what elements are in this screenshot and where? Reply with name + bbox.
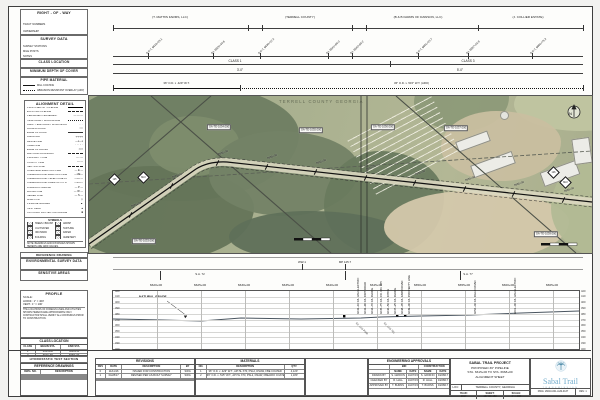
table-cell: REVISED PER AS-BUILT SURVEY bbox=[122, 374, 181, 378]
legend-item: CATHODIC PROTECTION ANODE■ bbox=[27, 211, 83, 215]
symbol-label: BUILDING bbox=[35, 236, 47, 239]
tick bbox=[583, 25, 584, 31]
station-tick bbox=[129, 212, 132, 218]
station-label: 6625+00 bbox=[172, 173, 183, 179]
legend-symbol: —FO— bbox=[67, 182, 83, 185]
table-cell: 36" O.D. x .515" W.T., API 5L X70, PSL2,… bbox=[207, 374, 285, 378]
legend-label: SECTION LINE bbox=[27, 166, 45, 169]
elevation-label-right: 340 bbox=[581, 336, 585, 339]
milepost-diamond: MLV bbox=[137, 171, 150, 184]
legend-label: PIPELINE MARKER bbox=[27, 203, 50, 206]
tick bbox=[478, 25, 479, 31]
sabal-palm-icon bbox=[555, 360, 567, 372]
crossing-annotation: 6647+25 C/L FENCE bbox=[393, 288, 397, 314]
panel-title: HYDROSTATIC TEST SECTION bbox=[21, 358, 87, 362]
symbols-list: TREES / BRUSHMARSHCULTIVATEDPASTUREORCHA… bbox=[27, 222, 83, 240]
approvals-cell: 10/27/15 bbox=[407, 384, 419, 388]
elevation-label-right: 380 bbox=[581, 313, 585, 316]
environmental-strip: WW-1MP 125.7 bbox=[0, 258, 600, 270]
tract-label: GA-TE-1037.000 bbox=[444, 125, 468, 131]
legend-symbol: —UT— bbox=[67, 178, 83, 181]
tick bbox=[248, 25, 249, 31]
header-cell: DESCRIPTION bbox=[207, 365, 285, 369]
title-block-main: SABAL TRAIL PROJECT PROPOSED 36" PIPELIN… bbox=[451, 359, 529, 385]
header-cell: DWG. NO. bbox=[21, 370, 41, 374]
header-cell: QTY. bbox=[285, 365, 304, 369]
owner-label: (T. MATHIS FARMS, LLC) bbox=[152, 15, 188, 19]
legend-symbol bbox=[67, 120, 83, 123]
milepost-label: MLV bbox=[560, 181, 571, 184]
dwg-cell: DWG: 26010-001-ALM-0137 bbox=[531, 389, 576, 396]
elevation-label-right: 400 bbox=[581, 301, 585, 304]
legend-symbol bbox=[67, 132, 83, 135]
legend-label: ADDL. TEMPORARY WORKSPACE bbox=[27, 124, 67, 127]
legend-label: ACCESS ROAD bbox=[27, 128, 46, 131]
header-cell: REV bbox=[96, 365, 106, 369]
header-cell: END STA. bbox=[61, 345, 87, 349]
sensitive-area-item: S.A. 77 bbox=[463, 272, 472, 276]
approvals-cell: R. HALL bbox=[419, 379, 437, 383]
profile-station-label: 6620+00 bbox=[150, 283, 162, 287]
profile-station-row: 6620+006625+006630+006635+006640+006645+… bbox=[0, 281, 600, 290]
alignment-sheet: RIGHT - OF - WAY TRACT NUMBERS OWNERSHIP… bbox=[0, 0, 600, 400]
legend-symbol: — P — bbox=[67, 187, 83, 190]
scale-cell: SCALE:1" = 400' bbox=[504, 391, 529, 399]
header-cell: BY bbox=[181, 365, 194, 369]
tract-label: GA-TE-1034.000 bbox=[207, 124, 231, 130]
tick bbox=[390, 61, 391, 67]
subcol-cell bbox=[369, 370, 390, 374]
station-label: 6655+00 bbox=[465, 176, 476, 182]
sensitive-areas-strip: S.A. 72S.A. 77 bbox=[0, 270, 600, 281]
table-cell: 0 bbox=[96, 370, 106, 374]
header-cell: BEGIN STA. bbox=[36, 345, 62, 349]
rev-value: 1 bbox=[585, 390, 586, 393]
crossing-annotation: 6645+75 C/L CO. RD. 155 bbox=[379, 281, 383, 314]
tract-label: GA-TE-1039.000 bbox=[534, 231, 558, 237]
class-label: CLASS 1 bbox=[228, 59, 241, 63]
aerial-map: N TERRELL COUNTY GEORGIA GA-TE-1033.000G… bbox=[88, 95, 593, 254]
legend-symbol: —··— bbox=[67, 157, 83, 160]
panel-profile: PROFILE SCALE: HORIZ.: 1" = 400' VERT.: … bbox=[20, 290, 88, 338]
foreign-line-annotation: EX. U/G PWR bbox=[355, 322, 369, 336]
reference-drawing-row bbox=[21, 379, 87, 380]
profile-scale-vertical: VERT.: 1" = 100' bbox=[23, 303, 85, 306]
crossing-annotation: 6644+70 C/L FENCE bbox=[370, 288, 374, 314]
symbol-label: MARSH bbox=[63, 222, 72, 225]
subcol-cell: DATE bbox=[437, 370, 449, 374]
symbol-label: WATER bbox=[63, 231, 72, 234]
symbol-label: CULTIVATED bbox=[35, 227, 50, 230]
approvals-cell: 10/27/15 bbox=[407, 374, 419, 378]
phase-cell: CONSTRUCTION bbox=[419, 365, 449, 369]
alignment-legend-list: PROPOSED 36" PIPELINEEXISTING PIPELINEPE… bbox=[25, 106, 85, 215]
approvals-cell: DRAWN BY bbox=[369, 374, 390, 378]
scale-value: 1" = 400' bbox=[511, 395, 521, 398]
legend-symbol bbox=[67, 111, 83, 114]
profile-station-label: 6640+00 bbox=[326, 283, 338, 287]
station-label: 6650+00 bbox=[415, 170, 426, 176]
logo-block: Sabal Trail TRANSMISSION DWG: 26010-001-… bbox=[530, 358, 591, 396]
legend-label: PERMANENT EASEMENT bbox=[27, 115, 58, 118]
legend-symbol bbox=[67, 107, 83, 110]
class-location-band: CLASS 1CLASS 3 bbox=[0, 59, 600, 68]
approvals-cell: 04/28/17 bbox=[437, 379, 449, 383]
legend-label: MILE POST bbox=[27, 199, 41, 202]
legend-label: OVERHEAD ELECTRIC LINE bbox=[27, 170, 61, 173]
approvals-cell: 04/28/17 bbox=[437, 384, 449, 388]
table-cell: 1 bbox=[96, 374, 106, 378]
elevation-label-right: 420 bbox=[581, 290, 585, 293]
phase-cell bbox=[369, 365, 390, 369]
revisions-table: REVISIONSREVDATEDESCRIPTIONBY011/11/16IS… bbox=[95, 358, 195, 396]
table-cell: ISSUED FOR CONSTRUCTION bbox=[122, 370, 181, 374]
owner-label: (B & B FARMS OF DAWSON, LLC) bbox=[394, 15, 443, 19]
rev-cell: REV: 1 bbox=[576, 389, 590, 396]
tick bbox=[160, 271, 161, 280]
band-line bbox=[113, 56, 583, 57]
cover-label: 5'-0" bbox=[457, 68, 463, 72]
symbol-label: ORCHARD bbox=[35, 231, 47, 234]
year-value: 2017 bbox=[461, 395, 467, 398]
map-overlay: TERRELL COUNTY GEORGIA GA-TE-1033.000GA-… bbox=[89, 96, 592, 253]
table-cell: 2 bbox=[196, 374, 207, 378]
phase-cell: BID bbox=[390, 365, 420, 369]
station-tick bbox=[463, 186, 466, 192]
approvals-row: APPROVED BYT. BURNS10/27/15T. BURNS04/28… bbox=[369, 384, 449, 389]
header-cell: NO. bbox=[196, 365, 207, 369]
legend-symbol: · · · bbox=[67, 124, 83, 127]
legend-label: TEMPORARY WORKSPACE bbox=[27, 120, 60, 123]
station-tick bbox=[512, 191, 515, 197]
crossing-annotation: 6643+10 C/L U/G ELECTRIC bbox=[356, 278, 360, 314]
panel-alignment-detail: ALIGNMENT DETAIL PROPOSED 36" PIPELINEEX… bbox=[24, 100, 86, 248]
milepost-diamond: 125 bbox=[108, 173, 121, 186]
symbol-label: PASTURE bbox=[63, 227, 74, 230]
station-label: 6630+00 bbox=[218, 150, 229, 156]
legend-symbol: ⌒⌒⌒ bbox=[67, 145, 83, 148]
tract-label: GA-TE-1035.000 bbox=[299, 127, 323, 133]
sheet-cell: SHEET:137 OF 480 bbox=[477, 391, 503, 399]
tick bbox=[460, 271, 461, 280]
elevation-label-right: 410 bbox=[581, 295, 585, 298]
approvals-cell: T. BURNS bbox=[390, 384, 408, 388]
legend-symbol: —·— bbox=[67, 161, 83, 164]
legend-symbol bbox=[67, 153, 83, 156]
sensitive-area-item: S.A. 72 bbox=[195, 272, 204, 276]
thin-line-sample bbox=[68, 132, 83, 133]
approvals-cell: S. GRIFFIN bbox=[390, 374, 408, 378]
symbol-item: BUILDING bbox=[27, 235, 55, 239]
band-line bbox=[113, 28, 583, 29]
milepost-label: 126 bbox=[548, 171, 559, 174]
hatch-sample bbox=[27, 235, 33, 239]
symbol-label: TREES / BRUSH bbox=[35, 222, 54, 225]
pipe-segment-solid bbox=[113, 88, 240, 89]
reference-drawings-table: REFERENCE DRAWINGSDWG. NO.DESCRIPTION bbox=[20, 363, 88, 396]
legend-symbol: ┼┼┼┼ bbox=[67, 136, 83, 139]
class-summary-table: CLASS LOCATIONCLASSBEGIN STA.END STA.166… bbox=[20, 338, 88, 356]
approvals-cell: 04/28/17 bbox=[437, 374, 449, 378]
pipe-segment-label: 36" O.D. x .429" W.T. bbox=[163, 81, 189, 85]
elevation-label-right: 350 bbox=[581, 330, 585, 333]
station-label: 6635+00 bbox=[267, 154, 278, 160]
profile-station-label: 6665+00 bbox=[546, 283, 558, 287]
tick bbox=[583, 85, 584, 91]
table-cell: SWG bbox=[181, 370, 194, 374]
header-cell: DESCRIPTION bbox=[41, 370, 87, 374]
legend-label: UNDERGROUND ELECTRIC LINE bbox=[27, 174, 67, 177]
dot-line-sample bbox=[68, 120, 83, 121]
legend-label: EXISTING PIPELINE bbox=[27, 111, 51, 114]
station-tick bbox=[562, 197, 565, 203]
profile-station-label: 6655+00 bbox=[458, 283, 470, 287]
class-label: CLASS 3 bbox=[461, 59, 474, 63]
elevation-label-right: 390 bbox=[581, 307, 585, 310]
header-cell: CLASS bbox=[21, 345, 36, 349]
survey-band: P.O.T. 6618+25.1P.I. 6625+40.6P.O.T. 663… bbox=[0, 35, 600, 59]
legend-symbol: ■ bbox=[67, 212, 83, 215]
milepost-label: MLV bbox=[138, 176, 149, 179]
county-watermark-label: TERRELL COUNTY GEORGIA bbox=[279, 99, 364, 104]
rev-label: REV: bbox=[579, 390, 585, 393]
title-block: SABAL TRAIL PROJECT PROPOSED 36" PIPELIN… bbox=[450, 358, 530, 396]
symbol-item: CEMETERY bbox=[55, 235, 83, 239]
legend-label: COUNTY LINE bbox=[27, 162, 44, 165]
approvals-cell: APPROVED BY bbox=[369, 384, 390, 388]
tick bbox=[352, 25, 353, 31]
dash-line-sample bbox=[68, 166, 83, 167]
tick bbox=[113, 85, 114, 91]
milepost-diamond: 126 bbox=[547, 166, 560, 179]
header-cell: DESCRIPTION bbox=[122, 365, 181, 369]
dwg-rev-row: DWG: 26010-001-ALM-0137 REV: 1 bbox=[531, 388, 590, 396]
station-tick bbox=[314, 169, 317, 175]
tick bbox=[262, 25, 263, 31]
location-label: LOC: bbox=[451, 385, 462, 390]
profile-station-label: 6625+00 bbox=[194, 283, 206, 287]
table-cell: 36" O.D. x .429" W.T., API 5L X70, PSL2,… bbox=[207, 370, 285, 374]
pipe-material-band: 36" O.D. x .429" W.T.36" O.D. x .515" W.… bbox=[0, 77, 600, 95]
tick bbox=[345, 271, 346, 280]
dash-line-sample bbox=[68, 153, 83, 154]
materials-table: MATERIALSNO.DESCRIPTIONQTY.136" O.D. x .… bbox=[195, 358, 305, 396]
profile-station-label: 6635+00 bbox=[282, 283, 294, 287]
elevation-label-right: 360 bbox=[581, 324, 585, 327]
material-row bbox=[196, 379, 304, 380]
tract-label: GA-TE-1036.000 bbox=[371, 124, 395, 130]
legend-label: EDGE OF WATER bbox=[27, 149, 48, 152]
legend-label: SEWER LINE bbox=[27, 195, 43, 198]
station-tick bbox=[265, 164, 268, 170]
location-value: TERRELL COUNTY, GEORGIA bbox=[462, 385, 529, 389]
subcol-cell: NAME bbox=[390, 370, 408, 374]
approvals-cell: CHECKED BY bbox=[369, 379, 390, 383]
table-cell: 1,180' bbox=[285, 374, 304, 378]
approvals-cell: T. BURNS bbox=[419, 384, 437, 388]
profile-station-label: 6630+00 bbox=[238, 283, 250, 287]
legend-symbol: — E — bbox=[67, 170, 83, 173]
approvals-cell: 10/27/15 bbox=[407, 379, 419, 383]
year-cell: YEAR:2017 bbox=[451, 391, 477, 399]
legend-symbol: ● bbox=[67, 208, 83, 211]
crossing-annotation: 6643+90 C/L DIRT ROAD bbox=[363, 282, 367, 314]
dash-line-sample bbox=[68, 111, 83, 112]
logo-name: Sabal Trail bbox=[531, 378, 590, 386]
legend-symbol: ≈≈≈ bbox=[67, 149, 83, 152]
station-tick bbox=[170, 183, 173, 189]
legend-label: PROPOSED 36" PIPELINE bbox=[27, 107, 58, 110]
pipe-segment-label: 36" O.D. x .515" W.T. (ARO) bbox=[394, 81, 429, 85]
band-line bbox=[113, 64, 583, 65]
station-tick bbox=[216, 160, 219, 166]
legend-symbol: —x—x bbox=[67, 141, 83, 144]
table-cell: 11/11/16 bbox=[106, 370, 123, 374]
legend-note: NOTE: BEARINGS AND DISTANCES SHOWN HEREO… bbox=[27, 241, 83, 248]
right-of-way-band: (T. MATHIS FARMS, LLC)(TERRELL COUNTY)(B… bbox=[0, 9, 600, 35]
elevation-label-right: 330 bbox=[581, 342, 585, 345]
subcol-cell: DATE bbox=[407, 370, 419, 374]
station-tick bbox=[364, 175, 367, 181]
tick bbox=[240, 85, 241, 91]
dwg-number: 26010-001-ALM-0137 bbox=[545, 390, 568, 393]
table-cell: 04/28/17 bbox=[106, 374, 123, 378]
hatch-sample bbox=[55, 235, 61, 239]
legend-symbol: — W — bbox=[67, 191, 83, 194]
legend-label: CATHODIC PROTECTION ANODE bbox=[27, 212, 67, 215]
legend-label: WATER LINE bbox=[27, 191, 42, 194]
legend-label: TREE LINE bbox=[27, 145, 40, 148]
legend-label: WETLAND BOUNDARY bbox=[27, 153, 55, 156]
crossing-annotation: 6649+00 C/L PROPERTY LINE bbox=[407, 275, 411, 314]
panel-hydro-test: HYDROSTATIC TEST SECTION bbox=[20, 356, 88, 363]
crossing-annotation: 6661+00 C/L U/G ELECTRIC bbox=[513, 278, 517, 314]
legend-label: UNDERGROUND TELEPHONE LINE bbox=[27, 178, 67, 181]
min-cover-band: 3'-0"5'-0" bbox=[0, 68, 600, 77]
approvals-table: ENGINEERING APPROVALSBIDCONSTRUCTIONNAME… bbox=[368, 358, 450, 396]
dwg-label: DWG: bbox=[538, 390, 545, 393]
separator-line bbox=[8, 350, 591, 351]
owner-label: (TERRELL COUNTY) bbox=[285, 15, 315, 19]
bold-line-sample bbox=[68, 107, 83, 108]
sheet-type: ALIGNMENT SHEET bbox=[451, 375, 529, 379]
crossing-annotation: 6646+50 C/L DITCH bbox=[386, 289, 390, 314]
legend-symbol: — S — bbox=[67, 195, 83, 198]
legend-symbol: ══ bbox=[67, 128, 83, 131]
table-cell: 1 bbox=[196, 370, 207, 374]
legend-label: UNDERGROUND FIBER OPTIC LINE bbox=[27, 182, 67, 185]
tick bbox=[366, 25, 367, 31]
revision-row bbox=[96, 380, 194, 381]
crossing-annotation: 6656+40 C/L FIELD ROAD bbox=[473, 280, 477, 314]
legend-label: TEST LEAD bbox=[27, 208, 41, 211]
station-tick bbox=[413, 180, 416, 186]
foreign-line-annotation: EX. U/G TEL bbox=[383, 322, 396, 335]
station-label: 6620+00 bbox=[131, 202, 142, 208]
owner-label: (J. COLLIER ESTATE) bbox=[513, 15, 544, 19]
tract-label: GA-TE-1033.000 bbox=[132, 238, 156, 244]
station-label: 6640+00 bbox=[316, 159, 327, 165]
approvals-cell: R. HALL bbox=[390, 379, 408, 383]
table-cell: SWG bbox=[181, 374, 194, 378]
legend-label: FOREIGN PIPELINE bbox=[27, 187, 51, 190]
approvals-cell: S. GRIFFIN bbox=[419, 374, 437, 378]
header-cell: DATE bbox=[106, 365, 123, 369]
sheet-value: 137 OF 480 bbox=[483, 395, 496, 398]
legend-label: FENCE LINE bbox=[27, 141, 42, 144]
pipe-segment-dotted bbox=[240, 88, 583, 89]
crossing-annotation: 6648+05 C/L FARM ROAD bbox=[400, 281, 404, 314]
table-cell: 4,120' bbox=[285, 370, 304, 374]
title-meta-row: YEAR:2017 SHEET:137 OF 480 SCALE:1" = 40… bbox=[451, 391, 529, 399]
legend-symbol: ◇ bbox=[67, 199, 83, 202]
band-line bbox=[113, 73, 583, 74]
profile-station-label: 6650+00 bbox=[414, 283, 426, 287]
subcol-cell: NAME bbox=[419, 370, 437, 374]
tick bbox=[113, 25, 114, 31]
legend-label: PROPERTY LINE bbox=[27, 157, 47, 160]
milepost-label: 125 bbox=[109, 178, 120, 181]
legend-label: RAILROAD bbox=[27, 136, 40, 139]
legend-label: EDGE OF ROAD bbox=[27, 132, 47, 135]
notes-box bbox=[305, 358, 368, 396]
symbol-label: CEMETERY bbox=[63, 236, 77, 239]
profile-note: THE LOCATIONS OF FOREIGN LINES AND UTILI… bbox=[23, 307, 85, 320]
cover-label: 3'-0" bbox=[237, 68, 243, 72]
elevation-label-right: 370 bbox=[581, 319, 585, 322]
legend-symbol bbox=[67, 166, 83, 169]
profile-annotations: 6643+10 C/L U/G ELECTRIC6643+90 C/L DIRT… bbox=[112, 290, 578, 348]
legend-symbol: —·—·— bbox=[67, 115, 83, 118]
legend-symbol: ▲ bbox=[67, 203, 83, 206]
station-label: 6660+00 bbox=[514, 181, 525, 187]
legend-symbol: —UE— bbox=[67, 174, 83, 177]
station-label: 6645+00 bbox=[366, 165, 377, 171]
